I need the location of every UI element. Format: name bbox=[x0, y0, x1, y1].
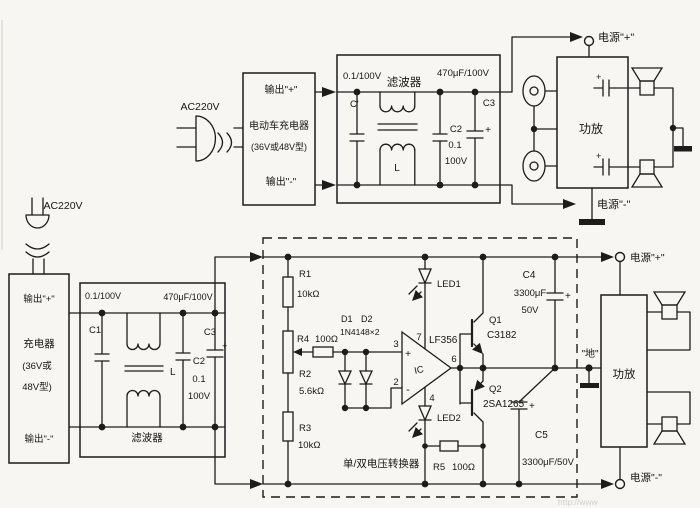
pin6-label: 6 bbox=[451, 354, 456, 365]
arrow-icon bbox=[250, 479, 263, 489]
ac-plug-bottom: AC220V bbox=[26, 198, 83, 274]
resistor-r5 bbox=[440, 441, 458, 451]
charger-out-minus: 输出"-" bbox=[266, 175, 297, 188]
ic-label: IC bbox=[413, 364, 425, 377]
c1-value: 0.1/100V bbox=[85, 291, 121, 301]
inverting-input: - bbox=[406, 384, 410, 396]
arrow-icon bbox=[570, 32, 583, 42]
cord-break-icon bbox=[218, 133, 232, 152]
led-icon bbox=[419, 269, 431, 283]
speaker-outputs-top: + + bbox=[594, 68, 692, 187]
c3-label: C3 bbox=[204, 327, 216, 338]
ac-voltage-label: AC220V bbox=[180, 101, 219, 113]
plug-icon bbox=[196, 116, 215, 161]
light-rays-icon bbox=[409, 286, 421, 300]
arrow-icon bbox=[563, 199, 576, 209]
diode-d2 bbox=[360, 352, 372, 408]
filter-title: 滤波器 bbox=[131, 431, 163, 444]
c1-label: C1 bbox=[89, 325, 101, 336]
speaker-icon bbox=[654, 417, 685, 444]
capacitor bbox=[467, 92, 483, 185]
c2-label: C2 bbox=[193, 356, 205, 367]
c3-value: 470μF/100V bbox=[163, 292, 212, 302]
power-plus-label: 电源"+" bbox=[598, 30, 634, 44]
r2-value: 5.6kΩ bbox=[299, 386, 324, 397]
power-plus-terminal bbox=[616, 253, 625, 262]
power-minus-label: 电源"-" bbox=[630, 471, 662, 484]
c4-value2: 50V bbox=[522, 305, 540, 316]
input-jacks bbox=[523, 76, 557, 181]
ground-icon bbox=[580, 383, 599, 388]
c2-value2: 100V bbox=[445, 156, 468, 167]
reference-network: D1 D2 1N4148×2 bbox=[313, 314, 402, 411]
charger-box-top: 输出"+" 电动车充电器 (36V或48V型) 输出"-" bbox=[243, 73, 315, 205]
led-icon bbox=[419, 406, 431, 420]
diode-icon bbox=[339, 371, 351, 384]
polarity-plus: + bbox=[596, 72, 601, 82]
c5-label: C5 bbox=[535, 430, 548, 441]
speaker-outputs-bottom bbox=[647, 292, 690, 444]
c4-value1: 3300μF bbox=[514, 288, 547, 299]
led2-label: LED2 bbox=[437, 413, 461, 424]
choke bbox=[125, 313, 163, 427]
scanned-schematic-page: AC220V 输出"+" 电动车充电器 (36V或48V型) 输出"-" 0.1… bbox=[0, 0, 700, 508]
resistor-r3 bbox=[283, 412, 293, 441]
diode-icon bbox=[360, 371, 372, 384]
pin7-label: 7 bbox=[416, 332, 421, 343]
polarity-plus: + bbox=[596, 151, 601, 161]
filter-title: 滤波器 bbox=[387, 76, 422, 89]
ground-icon bbox=[674, 146, 692, 152]
polarity-plus: + bbox=[565, 291, 571, 302]
charger-out-minus: 输出"-" bbox=[25, 433, 54, 445]
inductor-label: L bbox=[394, 163, 400, 174]
c4-label: C4 bbox=[523, 270, 536, 281]
rca-jack-icon bbox=[523, 151, 545, 181]
arrow-icon bbox=[250, 252, 263, 262]
led1: LED1 bbox=[409, 254, 461, 300]
arrow-icon bbox=[322, 180, 336, 190]
light-rays-icon bbox=[409, 423, 421, 437]
converter-title: 单/双电压转换器 bbox=[343, 457, 420, 470]
c2-label: C2 bbox=[450, 124, 462, 135]
inductor-label: L bbox=[170, 367, 176, 378]
c3-value: 470μF/100V bbox=[437, 68, 490, 79]
charger-type1: (36V或 bbox=[22, 360, 52, 372]
diode-value: 1N4148×2 bbox=[340, 327, 380, 337]
filter-box-bottom: 0.1/100V C1 470μF/100V L C2 0.1 100V C3 … bbox=[80, 283, 227, 457]
r5-label: R5 bbox=[433, 462, 445, 473]
arrow-icon bbox=[322, 87, 336, 97]
cord-break-icon bbox=[26, 244, 49, 257]
resistor-r4 bbox=[313, 347, 333, 357]
c2-value2: 100V bbox=[188, 391, 211, 402]
power-plus-label: 电源"+" bbox=[630, 251, 665, 264]
transistor-q1: Q1 C3182 bbox=[460, 254, 517, 372]
c2-value1: 0.1 bbox=[448, 140, 461, 151]
charger-name: 充电器 bbox=[23, 337, 55, 350]
charger-type: (36V或48V型) bbox=[251, 141, 307, 152]
r5-value: 100Ω bbox=[452, 462, 475, 473]
q1-model: C3182 bbox=[487, 330, 517, 341]
ac-voltage-label: AC220V bbox=[43, 200, 82, 212]
ground-icon bbox=[579, 219, 605, 225]
d1-label: D1 bbox=[341, 314, 353, 324]
r1-label: R1 bbox=[299, 269, 311, 280]
power-plus-terminal bbox=[585, 37, 594, 46]
divider-chain: R1 10kΩ R4 100Ω R2 5.6kΩ R3 10kΩ bbox=[283, 254, 338, 488]
wiper-arrow-icon bbox=[293, 348, 302, 356]
filter-box-top: 0.1/100V 滤波器 470μF/100V C' L C2 0.1 100V… bbox=[337, 55, 500, 203]
rca-jack-icon bbox=[523, 76, 545, 106]
c5-value: 3300μF/50V bbox=[522, 457, 575, 468]
charger-type2: 48V型) bbox=[22, 382, 52, 393]
speaker-icon bbox=[632, 160, 662, 187]
opamp-model: LF356 bbox=[429, 335, 458, 346]
amp-label: 功放 bbox=[613, 367, 636, 381]
c3-label: C3 bbox=[483, 98, 495, 109]
led2-r5: LED2 R5 100Ω bbox=[409, 406, 486, 487]
r2-label: R2 bbox=[299, 369, 311, 380]
polarity-plus: + bbox=[529, 401, 535, 412]
polarity-plus: + bbox=[485, 125, 491, 136]
charger-out-plus: 输出"+" bbox=[265, 83, 298, 96]
charger-name: 电动车充电器 bbox=[249, 119, 309, 132]
d2-label: D2 bbox=[361, 314, 373, 324]
speaker-icon bbox=[654, 292, 685, 319]
charger-box-bottom: 输出"+" 充电器 (36V或 48V型) 输出"-" bbox=[9, 274, 69, 463]
speaker-icon bbox=[632, 68, 662, 95]
pin4-label: 4 bbox=[429, 393, 434, 404]
power-minus-label: 电源"-" bbox=[597, 197, 631, 211]
watermark: http://www bbox=[558, 497, 599, 507]
power-minus-terminal bbox=[616, 480, 625, 489]
potentiometer-r2 bbox=[283, 331, 293, 373]
r3-value: 10kΩ bbox=[298, 440, 320, 451]
c2-value1: 0.1 bbox=[192, 374, 205, 385]
pin2-label: 2 bbox=[393, 377, 398, 388]
circuit-diagram: AC220V 输出"+" 电动车充电器 (36V或48V型) 输出"-" 0.1… bbox=[0, 0, 700, 508]
q1-label: Q1 bbox=[489, 315, 502, 326]
cap-c4: C4 3300μF 50V + bbox=[514, 254, 571, 372]
ground-label: "地" bbox=[581, 347, 599, 360]
led1-label: LED1 bbox=[437, 279, 461, 290]
cap-c5: + C5 3300μF/50V bbox=[511, 368, 575, 487]
amp-box-top: 功放 bbox=[557, 57, 628, 188]
amp-box-bottom: 功放 bbox=[601, 295, 647, 447]
r3-label: R3 bbox=[299, 423, 311, 434]
pin3-label: 3 bbox=[393, 339, 398, 350]
bottom-section: AC220V 输出"+" 充电器 (36V或 48V型) 输出"-" 0.1/1… bbox=[9, 198, 690, 497]
opamp: 3 2 + - IC 7 LF356 4 6 bbox=[393, 283, 457, 406]
top-section: AC220V 输出"+" 电动车充电器 (36V或48V型) 输出"-" 0.1… bbox=[177, 30, 692, 225]
resistor-r1 bbox=[283, 277, 293, 307]
charger-out-plus: 输出"+" bbox=[23, 293, 54, 305]
q2-label: Q2 bbox=[489, 384, 502, 395]
plug-icon bbox=[26, 215, 49, 228]
capacitor bbox=[433, 92, 447, 185]
polarity-plus: + bbox=[222, 341, 227, 351]
arrow-icon bbox=[601, 252, 614, 262]
r4-value: 100Ω bbox=[315, 334, 338, 345]
ac-plug-top: AC220V bbox=[177, 101, 243, 161]
diode-d1 bbox=[339, 352, 351, 408]
capacitor bbox=[176, 313, 190, 427]
r1-value: 10kΩ bbox=[297, 289, 319, 300]
arrow-icon bbox=[601, 479, 614, 489]
cin-value: 0.1/100V bbox=[343, 71, 382, 82]
noninverting-input: + bbox=[405, 349, 411, 360]
r4-label: R4 bbox=[297, 334, 309, 345]
amp-label: 功放 bbox=[579, 121, 603, 136]
